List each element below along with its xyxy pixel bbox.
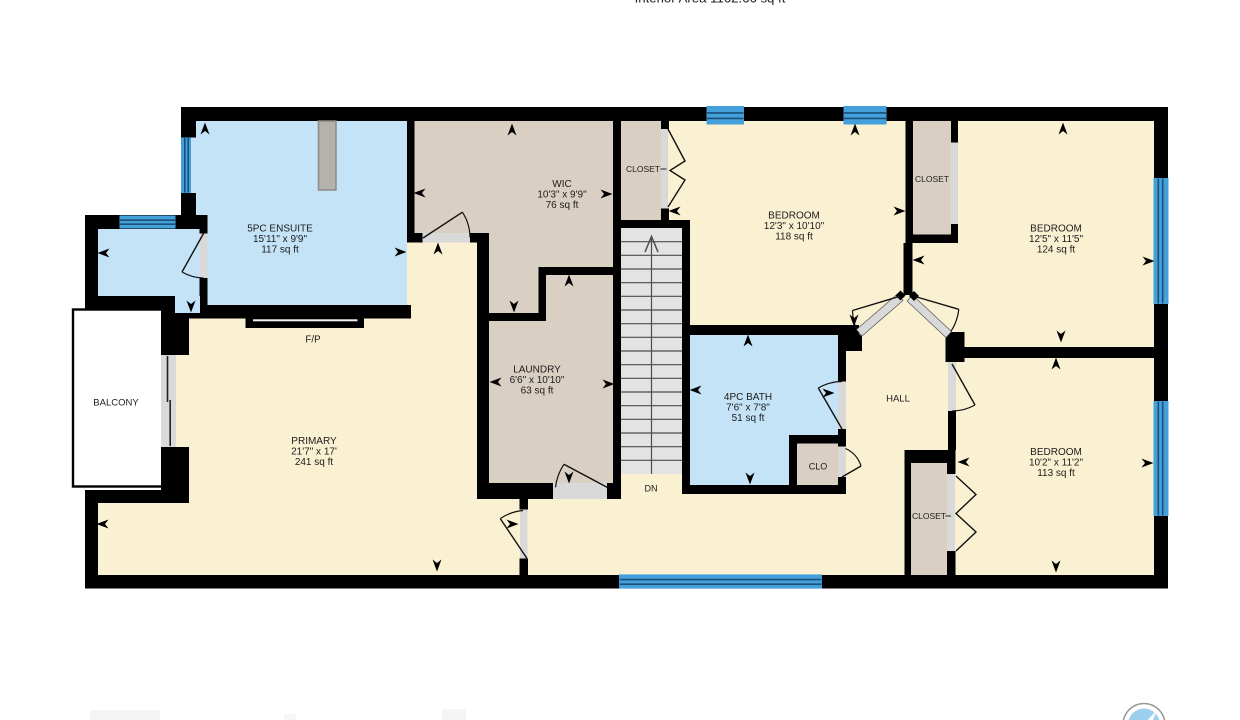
svg-text:F/P: F/P — [305, 335, 321, 346]
svg-text:76 sq ft: 76 sq ft — [546, 200, 579, 211]
svg-text:5PC ENSUITE: 5PC ENSUITE — [247, 224, 313, 235]
svg-text:124 sq ft: 124 sq ft — [1037, 245, 1076, 256]
svg-text:10'3" x 9'9": 10'3" x 9'9" — [537, 190, 587, 201]
svg-text:BEDROOM: BEDROOM — [1030, 224, 1082, 235]
svg-text:BALCONY: BALCONY — [93, 398, 139, 409]
svg-text:Interior Area 1162.66 sq ft: Interior Area 1162.66 sq ft — [635, 0, 786, 6]
svg-text:4PC BATH: 4PC BATH — [724, 392, 772, 403]
svg-text:10'2" x 11'2": 10'2" x 11'2" — [1029, 458, 1084, 469]
svg-text:117 sq ft: 117 sq ft — [261, 245, 299, 256]
svg-text:CLOSET: CLOSET — [915, 174, 949, 184]
svg-text:15'11" x 9'9": 15'11" x 9'9" — [253, 234, 308, 245]
svg-text:51 sq ft: 51 sq ft — [732, 413, 765, 424]
svg-text:113 sq ft: 113 sq ft — [1037, 468, 1075, 479]
svg-text:HALL: HALL — [886, 394, 910, 405]
svg-text:BEDROOM: BEDROOM — [768, 211, 820, 222]
svg-text:21'7" x 17': 21'7" x 17' — [291, 447, 337, 458]
svg-text:DN: DN — [645, 484, 658, 494]
svg-text:BEDROOM: BEDROOM — [1030, 447, 1082, 458]
svg-text:6'6" x 10'10": 6'6" x 10'10" — [510, 375, 565, 386]
svg-text:CLO: CLO — [809, 462, 828, 472]
svg-text:WIC: WIC — [552, 179, 571, 190]
svg-text:241 sq ft: 241 sq ft — [295, 457, 334, 468]
svg-text:CLOSET: CLOSET — [626, 164, 660, 174]
svg-text:118 sq ft: 118 sq ft — [775, 232, 813, 243]
svg-text:PRIMARY: PRIMARY — [291, 436, 337, 447]
svg-text:12'3" x 10'10": 12'3" x 10'10" — [764, 221, 825, 232]
svg-text:CLOSET: CLOSET — [912, 511, 946, 521]
svg-text:LAUNDRY: LAUNDRY — [513, 365, 561, 376]
svg-text:12'5" x 11'5": 12'5" x 11'5" — [1029, 234, 1084, 245]
svg-text:63 sq ft: 63 sq ft — [521, 386, 554, 397]
svg-text:7'6" x 7'8": 7'6" x 7'8" — [726, 403, 770, 414]
